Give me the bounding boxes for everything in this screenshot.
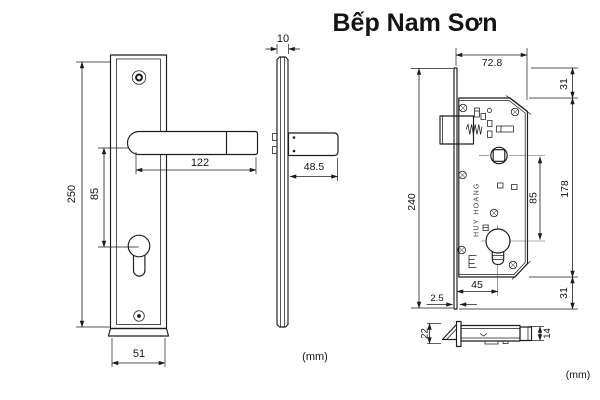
dim-case-width: 72.8 (456, 48, 527, 100)
dim-backset: 45 (457, 279, 498, 292)
fixing-tab (273, 134, 278, 141)
latch-faceplate (457, 322, 462, 347)
pin-hole (487, 108, 491, 112)
svg-text:10: 10 (277, 33, 289, 45)
svg-text:48.5: 48.5 (304, 161, 325, 173)
screw-icon (134, 311, 145, 322)
side-plate-outline (277, 57, 288, 327)
units-label: (mm) (302, 351, 328, 363)
brand-text: HUY HOANG (474, 182, 481, 237)
slot-hole (497, 126, 514, 132)
dim-spindle-to-cylinder: 85 (528, 157, 541, 240)
dim-bolt-height: 14 (529, 327, 553, 341)
clip-part (469, 256, 477, 268)
plate-inner-border (117, 59, 161, 325)
screw-icon (459, 171, 467, 179)
handle-side-profile (289, 133, 339, 156)
square-hole (488, 131, 493, 138)
latch-tab (503, 341, 508, 344)
screw-icon (509, 261, 517, 269)
spindle-hub (479, 147, 545, 163)
svg-text:178: 178 (559, 180, 571, 198)
dim-center-offset: 85 (89, 148, 139, 247)
pin-part (475, 108, 480, 117)
svg-text:31: 31 (558, 287, 570, 299)
dim-top-offset: 31 (558, 68, 573, 98)
spring-anchor (481, 114, 486, 120)
dim-bottom-offset: 31 (558, 277, 573, 309)
svg-text:72.8: 72.8 (482, 57, 503, 69)
front-view-handle-plate: 250 85 122 51 (66, 55, 258, 367)
fixing-tab (273, 147, 278, 154)
screw-icon (511, 108, 519, 116)
page-title: Bếp Nam Sơn (332, 9, 497, 37)
dim-faceplate-height: 240 (406, 69, 453, 309)
faceplate (454, 68, 457, 309)
units-label: (mm) (566, 369, 591, 381)
dim-case-height: 178 (559, 98, 573, 277)
side-view-plate: 10 48.5 (266, 33, 339, 327)
svg-text:31: 31 (558, 78, 570, 90)
svg-text:2.5: 2.5 (430, 293, 443, 304)
latch-notch (480, 334, 487, 337)
latch-end-cap (520, 327, 532, 341)
dim-latch-height: 22 (420, 324, 442, 344)
latch-body (461, 326, 520, 342)
dim-plate-width: 51 (112, 338, 165, 367)
dim-handle-depth: 48.5 (290, 158, 338, 181)
svg-text:45: 45 (471, 279, 483, 291)
dim-plate-thickness: 10 (266, 33, 301, 54)
dim-handle-length: 122 (136, 152, 256, 174)
svg-text:14: 14 (542, 328, 553, 339)
dim-faceplate-offset: 2.5 (427, 293, 478, 305)
latch-wedge (443, 325, 457, 340)
square-hole (488, 121, 493, 127)
square-hole (512, 185, 518, 190)
svg-text:85: 85 (528, 192, 540, 204)
plate-bottom-bevel (109, 329, 169, 337)
keyhole-icon (128, 235, 150, 276)
latch-part-view: 22 14 (420, 322, 554, 347)
svg-text:51: 51 (133, 348, 145, 360)
screw-icon (459, 104, 467, 112)
svg-text:85: 85 (89, 188, 101, 200)
svg-text:122: 122 (191, 157, 209, 169)
cylinder-keyhole (481, 225, 545, 296)
screw-icon (490, 209, 498, 217)
svg-text:250: 250 (66, 185, 78, 203)
lock-body-view: HUY HOANG 72.8 24 (406, 48, 578, 309)
screw-icon (132, 71, 146, 85)
lever-handle (128, 132, 258, 155)
square-hole (498, 183, 504, 188)
svg-text:22: 22 (420, 328, 431, 339)
lock-technical-drawing: Bếp Nam Sơn 250 (0, 0, 600, 400)
svg-text:240: 240 (406, 193, 418, 211)
plate-outline (111, 55, 167, 329)
